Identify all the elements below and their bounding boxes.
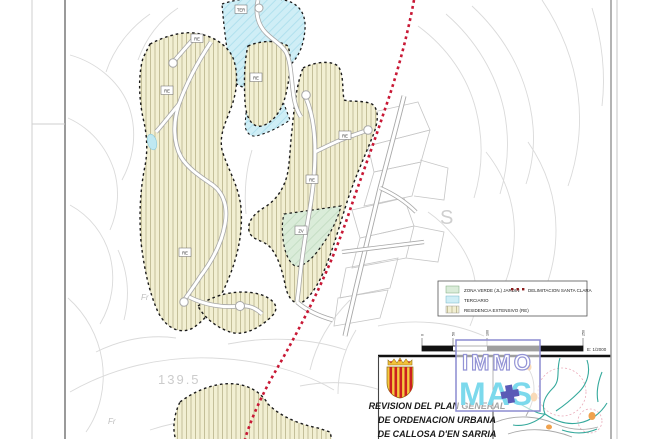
elevation-label: 139.5	[158, 372, 201, 387]
legend-label-terciario: TERCIARIO	[464, 298, 489, 303]
watermark-mas: MAS	[459, 376, 533, 412]
terrain-label-fr: Fr	[141, 293, 149, 302]
scale-tick: 100	[486, 330, 490, 336]
title-line-2: DE ORDENACION URBANA	[378, 415, 496, 425]
terrain-label-fr-2: Fr	[108, 417, 116, 426]
residencial-zone-d	[174, 384, 332, 439]
legend-swatch-residencia	[446, 306, 459, 313]
zone-label-zv: ZV	[298, 229, 304, 234]
zone-label: RE	[194, 37, 200, 42]
legend-label-delimitacion: DELIMITACION SANTA CLARA	[528, 288, 592, 293]
legend: ZONA VERDE (JL) JARDIN DELIMITACION SANT…	[438, 281, 592, 316]
zone-label: RE	[309, 178, 315, 183]
plan-map-page: S Fr Fr 139.5	[0, 0, 648, 439]
zone-label-ter: TER	[237, 8, 245, 13]
zone-label: RE	[253, 76, 259, 81]
zone-label: RE	[182, 251, 188, 256]
plan-map-canvas: S Fr Fr 139.5	[0, 0, 648, 439]
scale-tick: 250	[582, 330, 586, 336]
scale-tick: 0	[421, 334, 425, 336]
zone-label: RE	[164, 89, 170, 94]
legend-label-residencia: RESIDENCIA EXTENSIVO (RE)	[464, 308, 529, 313]
coat-of-arms	[387, 358, 413, 398]
scale-tick: 50	[452, 332, 456, 336]
legend-swatch-terciario	[446, 296, 459, 303]
legend-symbol-delimitacion	[511, 288, 524, 290]
immo-mas-watermark: IMMO MAS	[456, 340, 540, 412]
terrain-letter-s: S	[440, 207, 453, 229]
scale-ratio-label: E: 1/2000	[587, 347, 607, 352]
watermark-immo: IMMO	[462, 350, 534, 375]
zone-label: RE	[342, 134, 348, 139]
title-line-3: DE CALLOSA D'EN SARRIA	[378, 429, 497, 439]
legend-swatch-zona-verde	[446, 286, 459, 293]
